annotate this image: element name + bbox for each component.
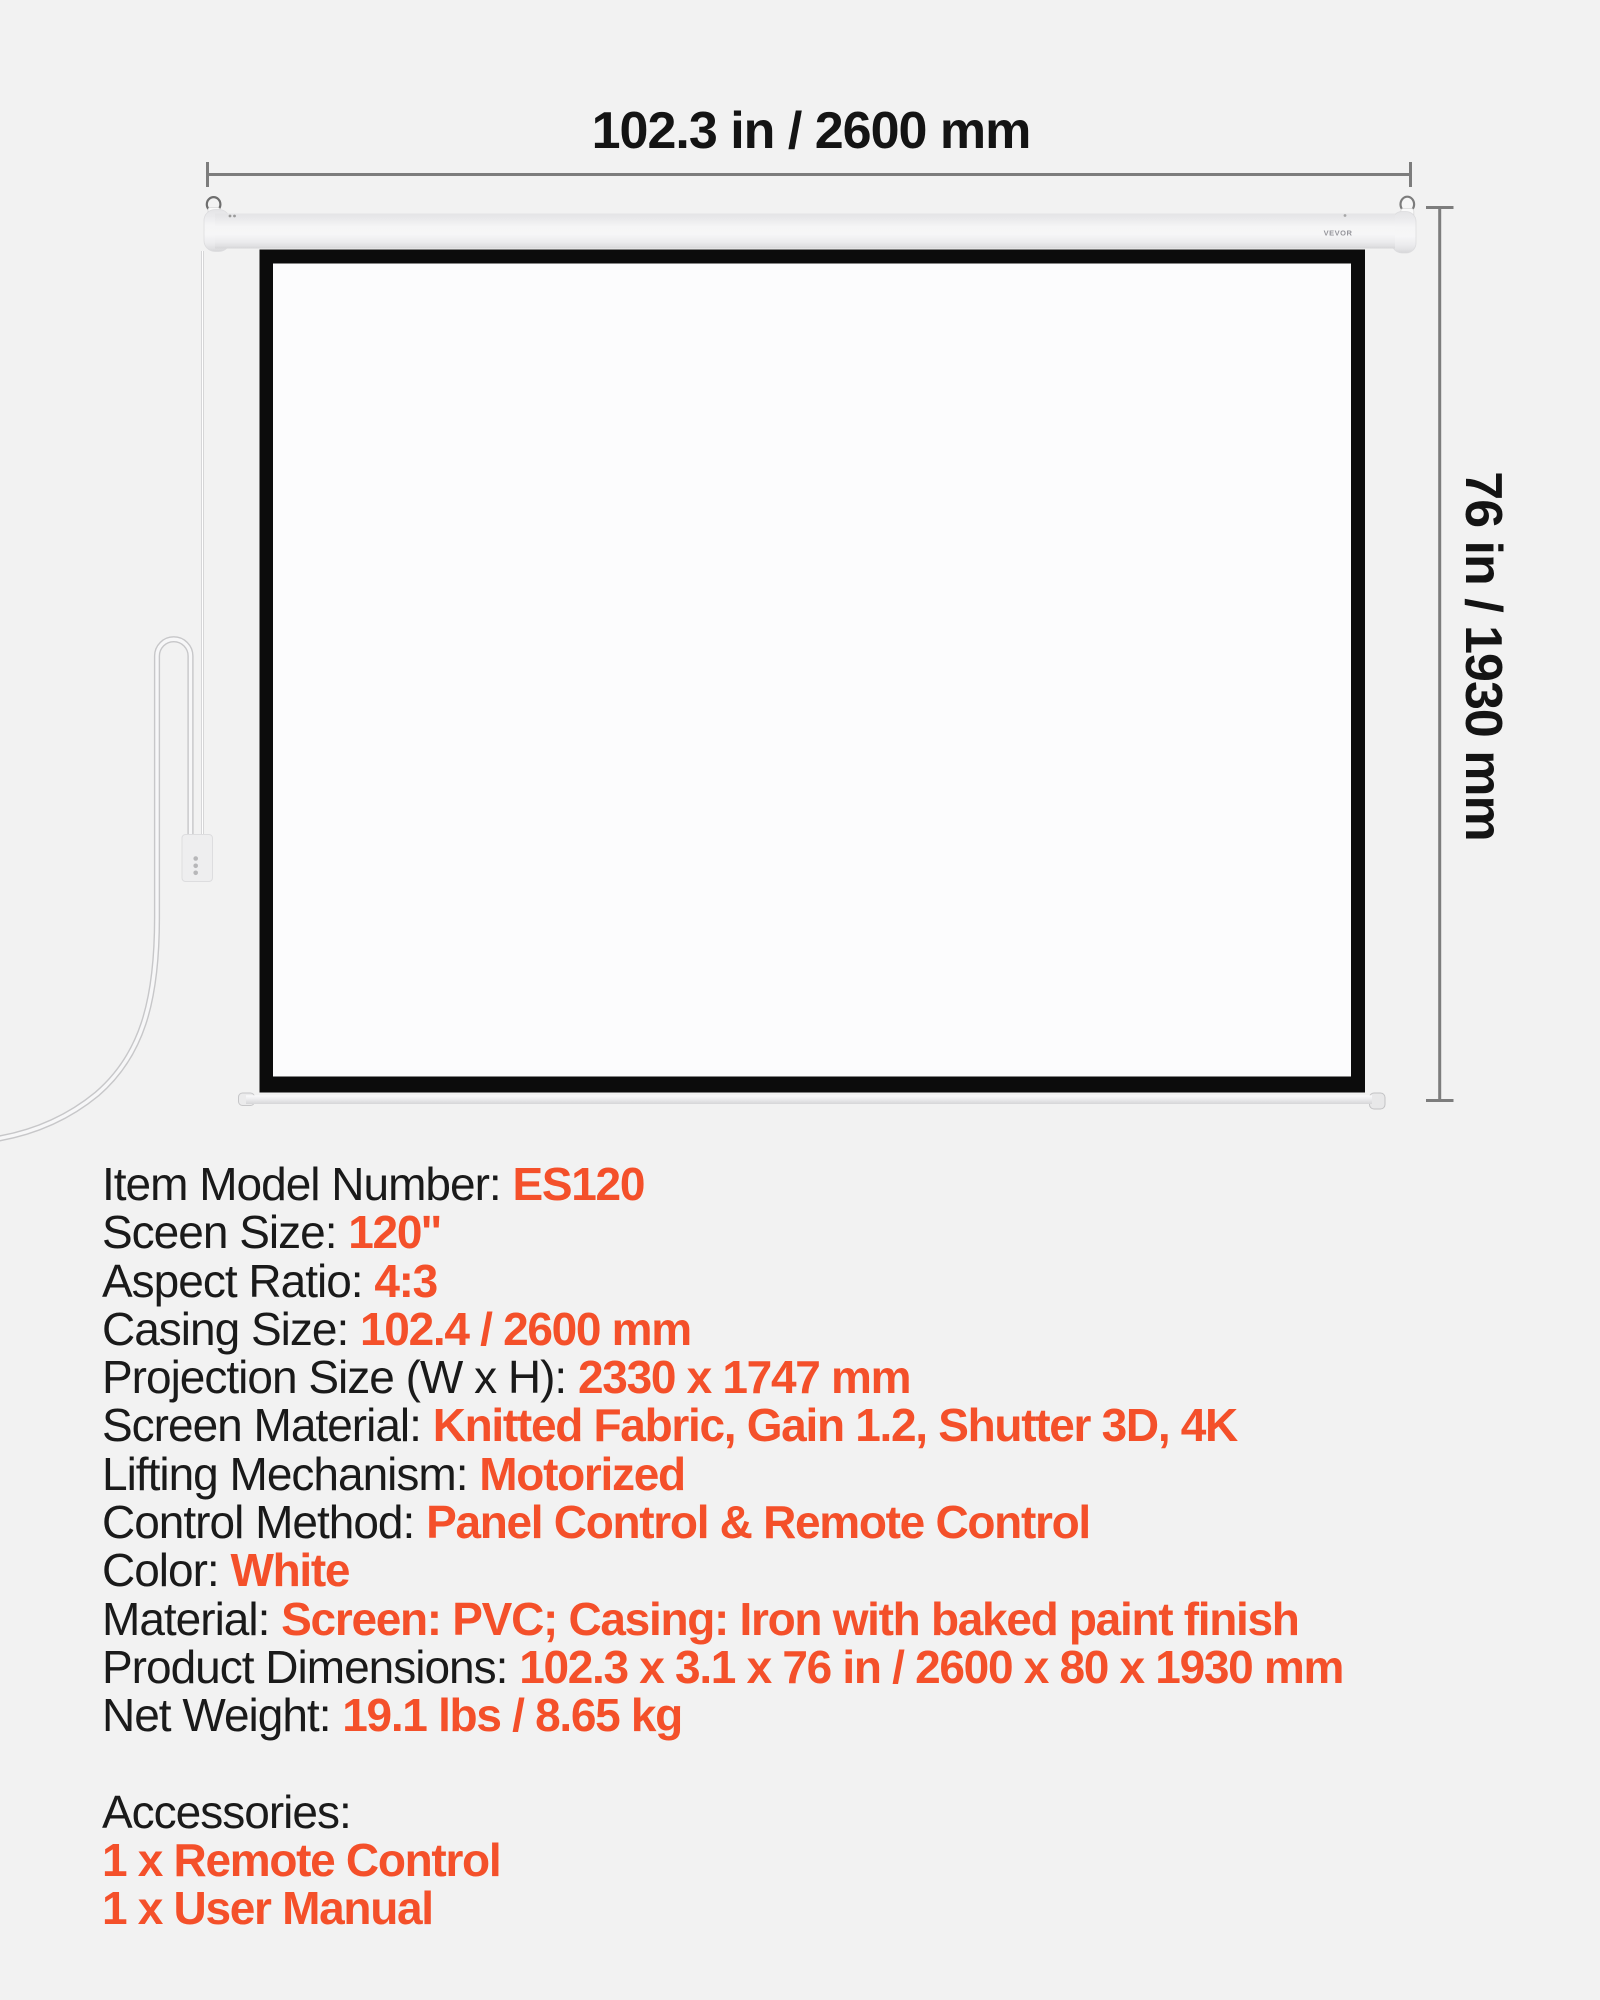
svg-text:VEVOR: VEVOR xyxy=(1324,229,1353,238)
